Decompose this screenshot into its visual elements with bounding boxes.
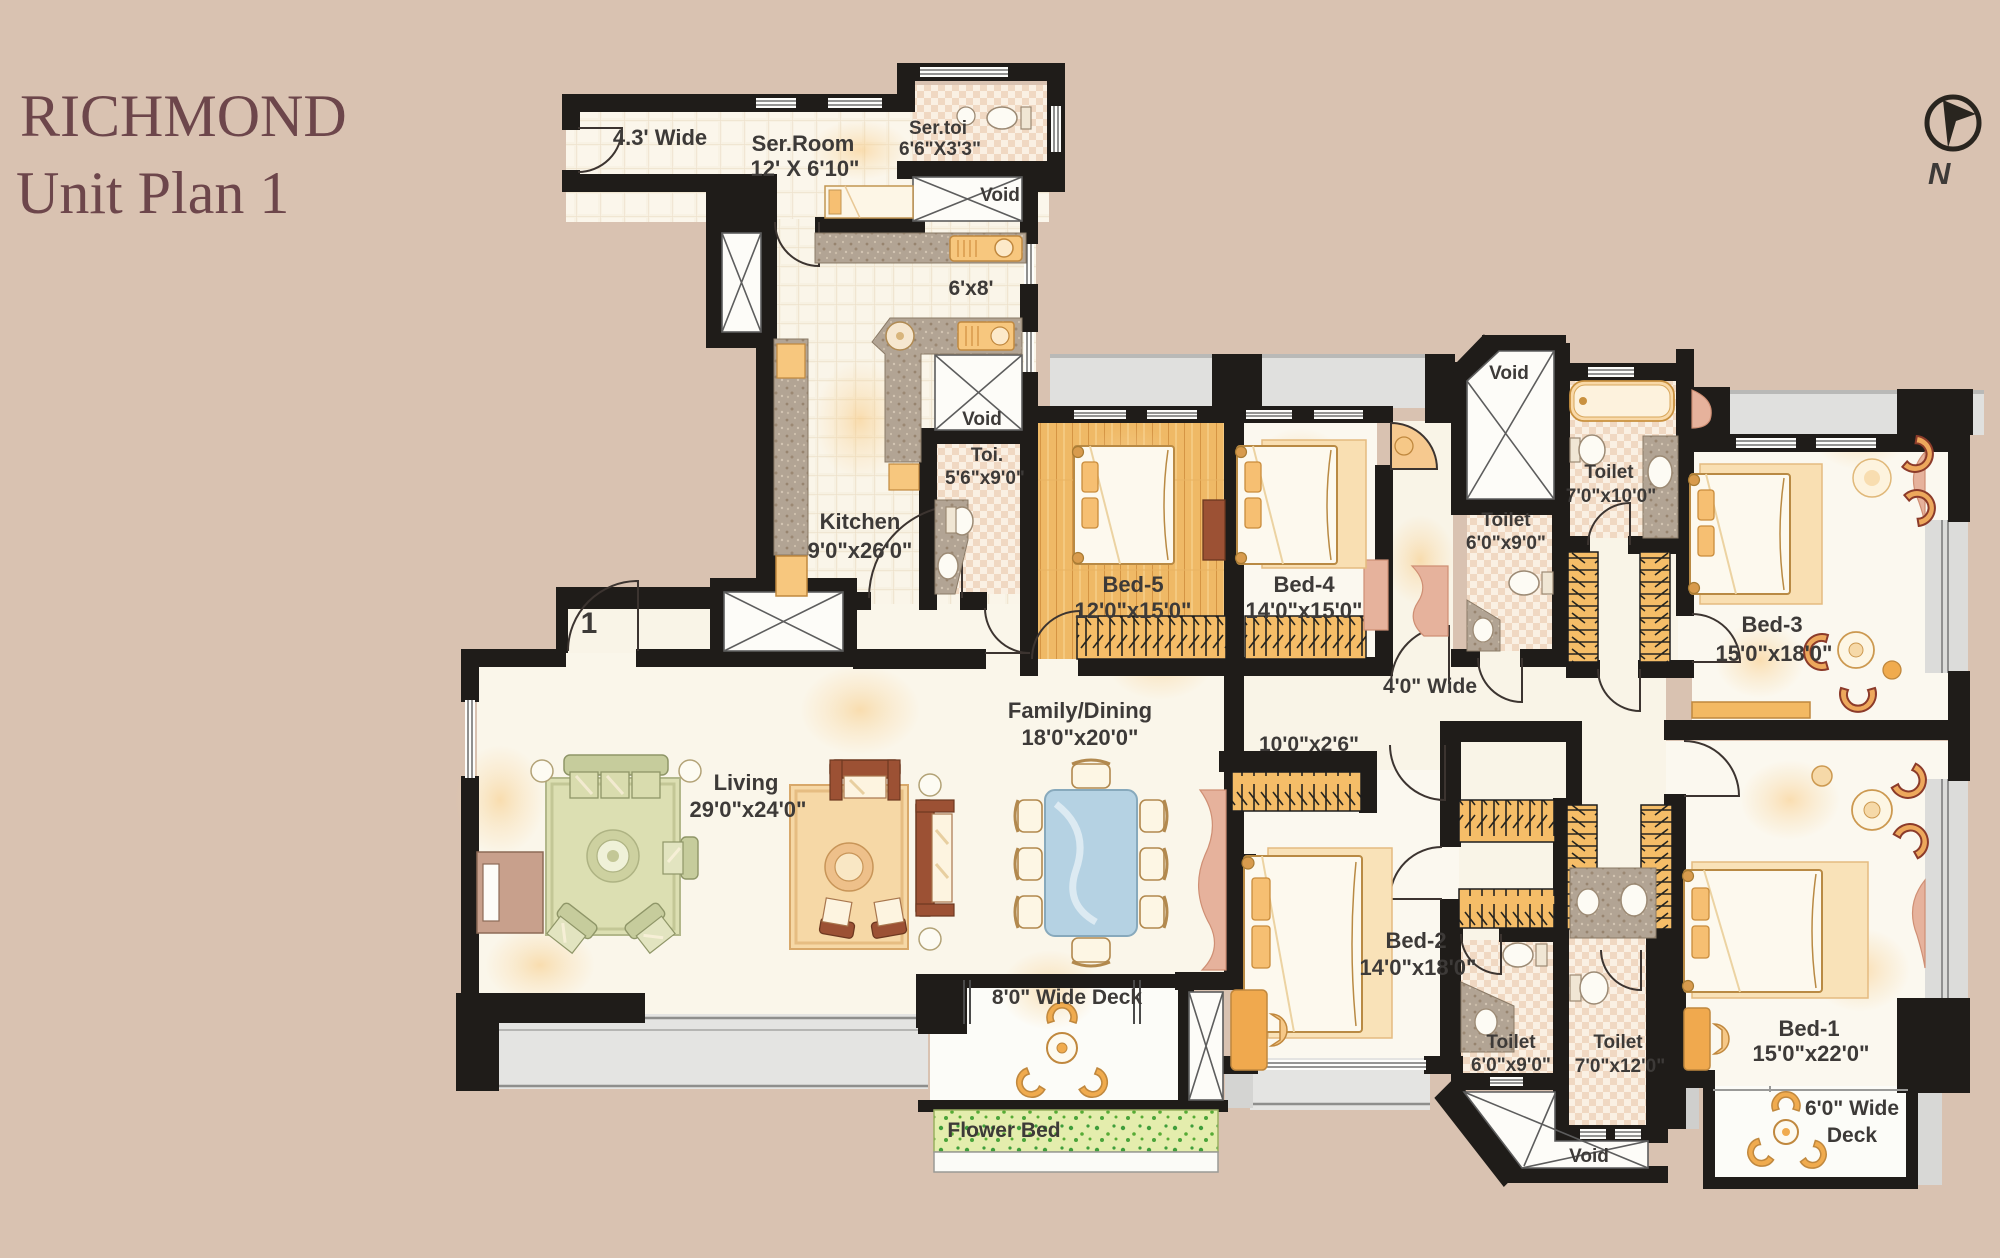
svg-text:Void: Void: [1569, 1146, 1609, 1167]
svg-text:Bed-3: Bed-3: [1741, 612, 1802, 637]
svg-text:6'6"X3'3": 6'6"X3'3": [899, 139, 981, 160]
svg-text:Bed-4: Bed-4: [1273, 572, 1335, 597]
svg-text:Ser.toi: Ser.toi: [909, 118, 967, 139]
svg-text:6'x8': 6'x8': [948, 277, 993, 300]
svg-text:Void: Void: [1489, 363, 1529, 384]
svg-text:Unit Plan 1: Unit Plan 1: [16, 160, 289, 226]
svg-text:4.3' Wide: 4.3' Wide: [613, 125, 707, 150]
svg-text:6'0"x9'0": 6'0"x9'0": [1466, 533, 1546, 554]
svg-text:N: N: [1928, 156, 1951, 191]
svg-text:9'0"x26'0": 9'0"x26'0": [808, 538, 913, 563]
svg-text:7'0"x12'0": 7'0"x12'0": [1575, 1056, 1665, 1077]
svg-text:1: 1: [581, 607, 598, 640]
svg-text:18'0"x20'0": 18'0"x20'0": [1022, 725, 1139, 750]
svg-text:10'0"x2'6": 10'0"x2'6": [1259, 733, 1359, 756]
svg-text:Bed-2: Bed-2: [1385, 928, 1446, 953]
svg-text:RICHMOND: RICHMOND: [20, 83, 347, 149]
svg-text:12'0"x15'0": 12'0"x15'0": [1075, 598, 1192, 623]
svg-text:14'0"x18'0": 14'0"x18'0": [1360, 955, 1477, 980]
svg-text:Toilet: Toilet: [1486, 1032, 1536, 1053]
svg-text:4'0" Wide: 4'0" Wide: [1383, 675, 1477, 698]
svg-text:7'0"x10'0": 7'0"x10'0": [1566, 486, 1656, 507]
svg-text:6'0" Wide: 6'0" Wide: [1805, 1097, 1899, 1120]
svg-text:Living: Living: [714, 770, 779, 795]
svg-text:Void: Void: [962, 409, 1002, 430]
svg-text:Void: Void: [980, 185, 1020, 206]
svg-text:Toilet: Toilet: [1481, 510, 1531, 531]
svg-text:29'0"x24'0": 29'0"x24'0": [690, 797, 807, 822]
svg-text:15'0"x18'0": 15'0"x18'0": [1716, 641, 1833, 666]
svg-text:Bed-1: Bed-1: [1778, 1016, 1839, 1041]
svg-text:Toilet: Toilet: [1593, 1032, 1643, 1053]
svg-text:8'0" Wide Deck: 8'0" Wide Deck: [992, 986, 1142, 1009]
svg-text:Flower Bed: Flower Bed: [947, 1119, 1060, 1142]
svg-text:Deck: Deck: [1827, 1124, 1878, 1147]
svg-text:Toilet: Toilet: [1584, 462, 1634, 483]
svg-text:Toi.: Toi.: [971, 445, 1003, 466]
svg-text:Ser.Room: Ser.Room: [752, 131, 855, 156]
svg-text:Bed-5: Bed-5: [1102, 572, 1163, 597]
svg-text:12' X 6'10": 12' X 6'10": [751, 156, 860, 181]
svg-text:6'0"x9'0": 6'0"x9'0": [1471, 1055, 1551, 1076]
svg-text:15'0"x22'0": 15'0"x22'0": [1753, 1041, 1870, 1066]
svg-text:5'6"x9'0": 5'6"x9'0": [945, 468, 1025, 489]
svg-text:14'0"x15'0": 14'0"x15'0": [1246, 598, 1363, 623]
svg-text:Family/Dining: Family/Dining: [1008, 698, 1152, 723]
svg-text:Kitchen: Kitchen: [820, 509, 901, 534]
